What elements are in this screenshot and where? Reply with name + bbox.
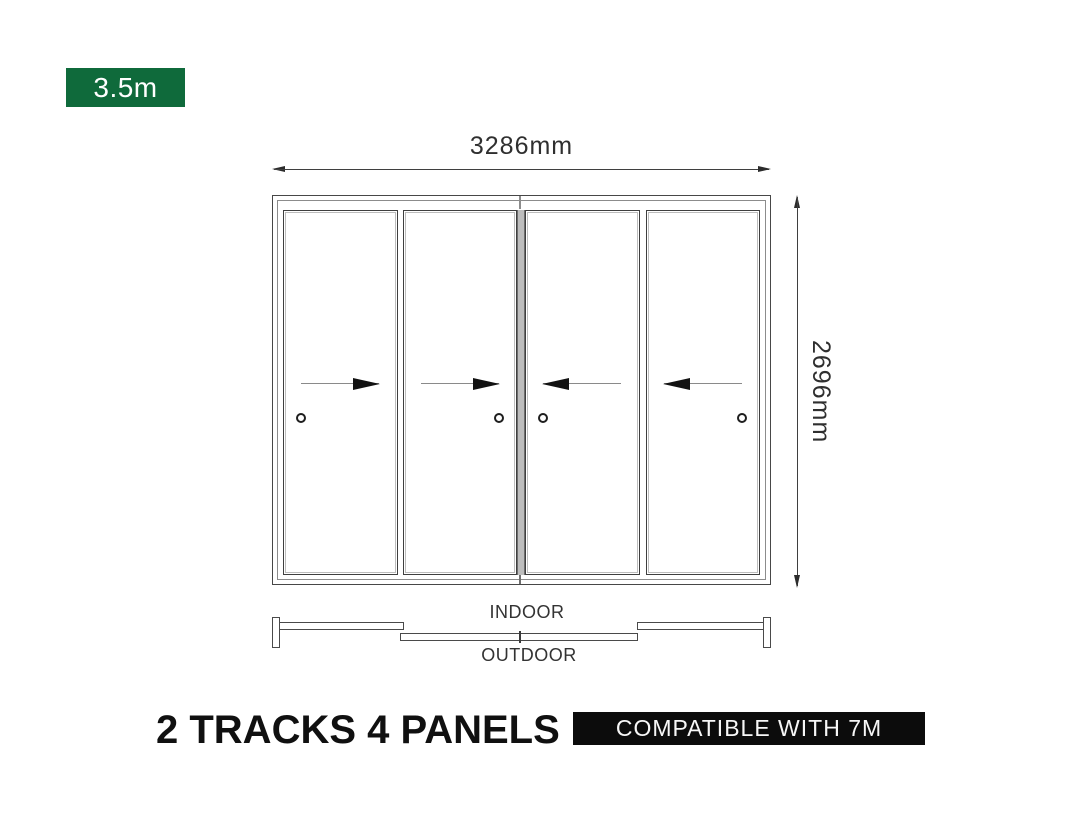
- width-dimension-label: 3286mm: [272, 132, 771, 161]
- door-panel-1: [283, 210, 398, 575]
- indoor-label: INDOOR: [377, 602, 677, 623]
- slide-right-arrow-icon: [300, 378, 380, 390]
- slide-left-arrow-icon: [542, 378, 622, 390]
- arrow-head-icon: [473, 378, 500, 390]
- door-panel-2: [403, 210, 518, 575]
- handle-circle: [737, 413, 747, 423]
- handle-circle: [494, 413, 504, 423]
- compatibility-badge: COMPATIBLE WITH 7M: [573, 712, 925, 745]
- arrow-head-right-icon: [758, 166, 771, 172]
- arrow-head-icon: [353, 378, 380, 390]
- track-outer-right-bar: [637, 622, 764, 630]
- center-meeting-stile: [517, 210, 525, 575]
- arrow-head-icon: [542, 378, 569, 390]
- handle-circle: [538, 413, 548, 423]
- configuration-title: 2 TRACKS 4 PANELS: [156, 706, 560, 754]
- height-dimension-arrow: [792, 195, 804, 588]
- door-panel-4: [646, 210, 761, 575]
- door-panel-3: [525, 210, 640, 575]
- dimension-line: [274, 169, 769, 170]
- arrow-head-down-icon: [794, 575, 800, 588]
- track-center-meeting-tick: [519, 631, 521, 643]
- outdoor-label: OUTDOOR: [379, 645, 679, 666]
- arrow-head-icon: [663, 378, 690, 390]
- slide-right-arrow-icon: [420, 378, 500, 390]
- panels-row: [283, 210, 760, 575]
- dimension-line: [797, 197, 798, 586]
- handle-circle: [296, 413, 306, 423]
- track-right-end-cap: [763, 617, 771, 648]
- center-meeting-tick-top: [519, 196, 521, 209]
- center-meeting-tick-bottom: [519, 574, 521, 584]
- door-frame: [272, 195, 771, 585]
- slide-left-arrow-icon: [663, 378, 743, 390]
- size-badge: 3.5m: [66, 68, 185, 107]
- height-dimension-label: 2696mm: [806, 195, 835, 588]
- product-diagram-page: 3.5m 3286mm 2696mm INDOOR OUTDOOR 2 TRAC…: [0, 0, 1080, 831]
- width-dimension-arrow: [272, 164, 771, 176]
- track-outer-left-bar: [279, 622, 404, 630]
